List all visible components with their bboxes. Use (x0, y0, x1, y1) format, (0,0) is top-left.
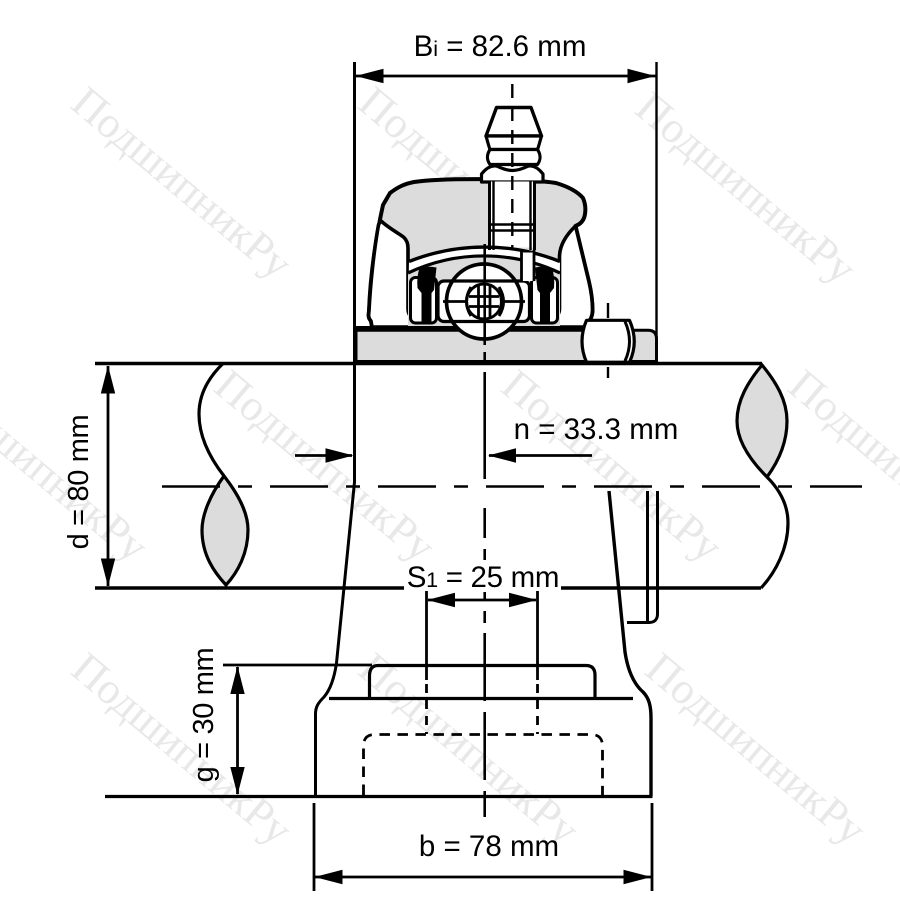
svg-text:d = 80 mm: d = 80 mm (63, 415, 95, 550)
svg-text:n = 33.3 mm: n = 33.3 mm (514, 413, 679, 446)
svg-text:g = 30 mm: g = 30 mm (188, 648, 220, 783)
svg-text:Bi = 82.6 mm: Bi = 82.6 mm (414, 30, 587, 63)
svg-text:b = 78 mm: b = 78 mm (419, 830, 559, 863)
